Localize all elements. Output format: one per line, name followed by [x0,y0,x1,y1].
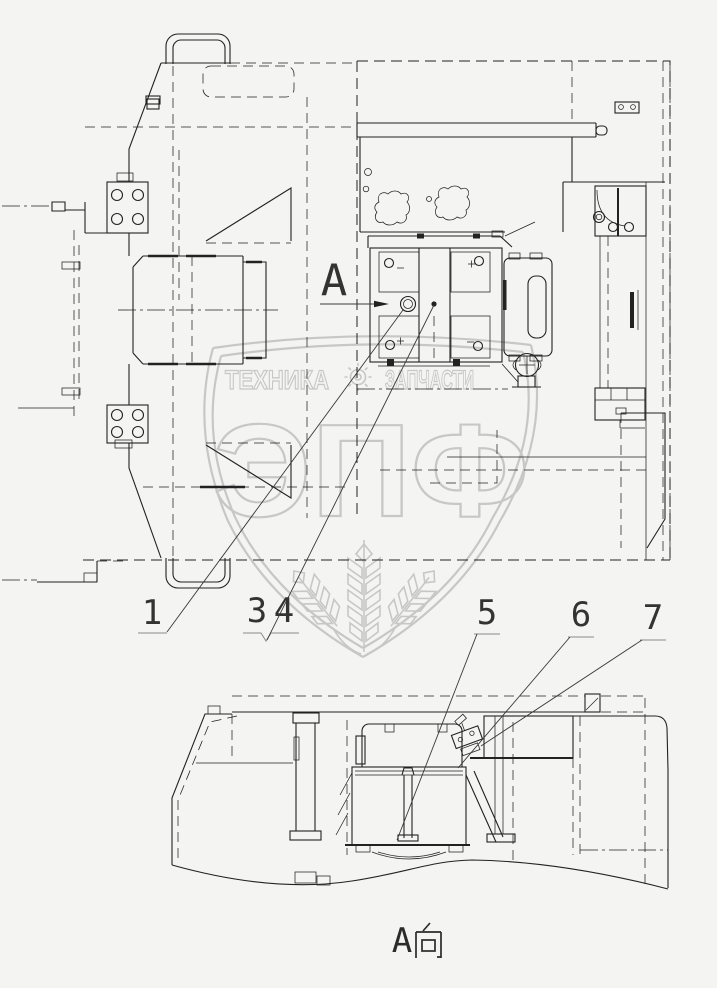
leader-7 [481,640,642,746]
watermark-banner-left: ТЕХНИКА [225,365,329,395]
callout-3: 3 [247,591,267,631]
callout-6: 6 [571,595,591,635]
section-arrow-head [374,301,389,307]
section-left-fender [172,714,293,865]
mounting-bracket-upper [107,173,148,233]
section-battery-frame [356,724,462,767]
frame-bracket-upper-right [594,186,647,236]
section-strut [466,771,503,842]
small-plate [615,102,639,113]
section-upper-box [470,716,573,855]
wheat-ears-icon [283,540,445,654]
hold-down-rod [404,775,412,838]
section-terminal-clamp [446,711,486,757]
section-right-post [487,716,515,860]
hold-down-rod-top [401,297,416,312]
section-right-panel [551,698,668,888]
grab-handle-bottom [166,558,230,588]
gusset-upper [206,188,291,241]
section-marker-label: A [321,256,348,307]
callout-4: 4 [274,591,294,631]
grab-handle-top [166,34,230,64]
callout-7: 7 [643,598,663,638]
section-battery [336,767,470,859]
leader-6 [458,637,570,768]
section-break-line [172,860,668,889]
watermark-banner-right: ЗАПЧАСТИ [385,365,474,395]
technical-drawing: ТЕХНИКА ЗАПЧАСТИ ЭПФ [0,0,717,988]
section-view [172,694,668,889]
section-left-post [290,713,321,840]
watermark-logo-text: ЭПФ [213,397,529,544]
callout-1: 1 [142,593,162,633]
leader-5 [397,634,477,840]
view-title-label: A [392,921,412,961]
muffler-cylinder [118,256,278,364]
callout-5: 5 [477,593,497,633]
drawing-sheet: ТЕХНИКА ЗАПЧАСТИ ЭПФ [0,0,717,988]
gear-icon [345,363,372,391]
right-fender [616,408,665,548]
cjk-xiang-glyph [416,923,441,958]
mounting-bracket-lower [107,364,148,448]
